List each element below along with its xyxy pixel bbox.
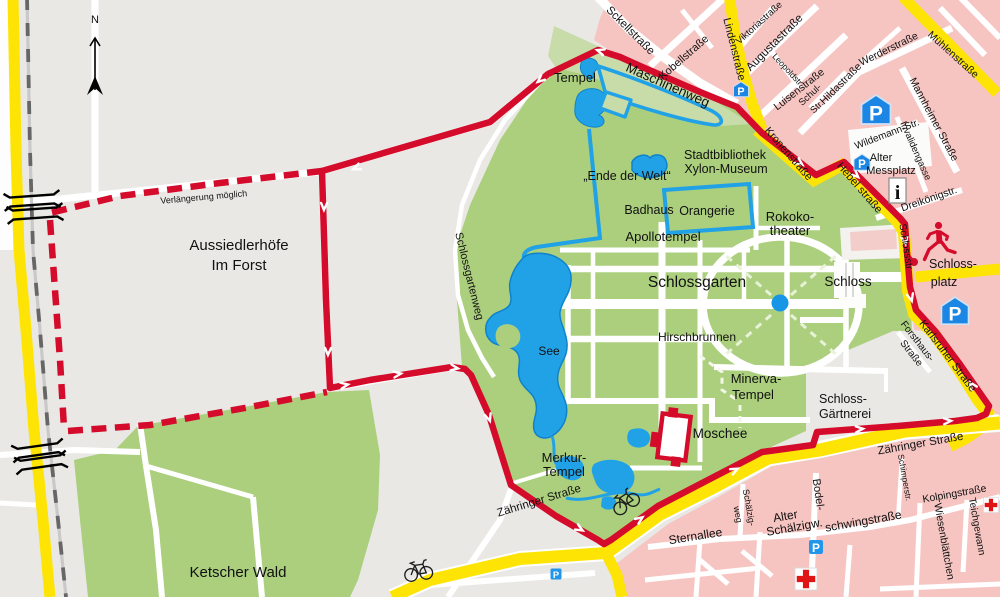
svg-text:Badhaus: Badhaus bbox=[624, 203, 673, 217]
svg-text:Orangerie: Orangerie bbox=[679, 204, 735, 218]
svg-text:Schloss-: Schloss- bbox=[819, 392, 867, 406]
svg-text:Aussiedlerhöfe: Aussiedlerhöfe bbox=[189, 237, 288, 254]
svg-text:Stadtbibliothek: Stadtbibliothek bbox=[684, 148, 767, 162]
svg-text:Xylon-Museum: Xylon-Museum bbox=[684, 162, 767, 176]
svg-text:Schlossgarten: Schlossgarten bbox=[648, 274, 746, 291]
svg-text:Merkur-: Merkur- bbox=[542, 450, 587, 465]
svg-text:Tempel: Tempel bbox=[732, 387, 774, 402]
svg-text:Tempel: Tempel bbox=[554, 70, 596, 85]
svg-text:See: See bbox=[538, 344, 560, 358]
svg-text:Alter: Alter bbox=[870, 152, 893, 164]
svg-text:Schloss-: Schloss- bbox=[929, 257, 977, 271]
svg-text:Schloss: Schloss bbox=[824, 274, 872, 289]
svg-text:Messplatz: Messplatz bbox=[866, 165, 916, 177]
svg-text:Tempel: Tempel bbox=[543, 464, 585, 479]
svg-text:N: N bbox=[91, 14, 99, 26]
svg-text:i: i bbox=[895, 182, 901, 204]
svg-text:Ketscher Wald: Ketscher Wald bbox=[190, 564, 287, 581]
svg-text:Apollotempel: Apollotempel bbox=[625, 229, 700, 244]
svg-text:Gärtnerei: Gärtnerei bbox=[819, 407, 871, 421]
svg-text:Moschee: Moschee bbox=[693, 426, 748, 441]
svg-text:Im Forst: Im Forst bbox=[212, 257, 268, 274]
svg-text:Rokoko-: Rokoko- bbox=[766, 209, 814, 224]
svg-text:Hirschbrunnen: Hirschbrunnen bbox=[658, 330, 736, 344]
svg-text:„Ende der Welt“: „Ende der Welt“ bbox=[583, 169, 670, 183]
svg-text:platz: platz bbox=[931, 275, 957, 289]
svg-text:Minerva-: Minerva- bbox=[731, 371, 782, 386]
svg-text:theater: theater bbox=[770, 223, 811, 238]
